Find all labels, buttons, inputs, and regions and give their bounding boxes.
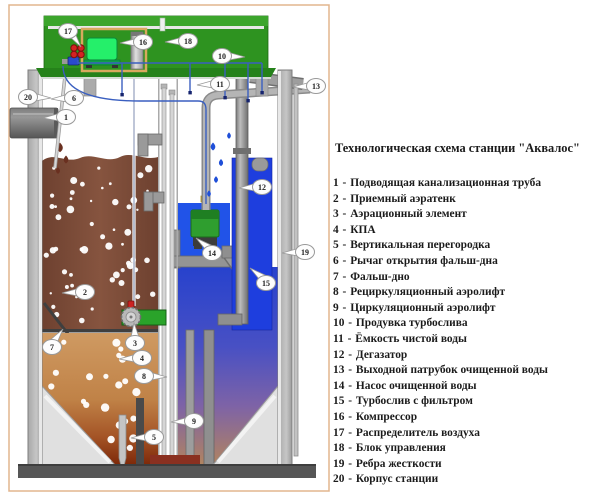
lid-vent bbox=[160, 18, 165, 31]
bubble bbox=[79, 318, 85, 324]
legend-item-5: 5 - Вертикальная перегородка bbox=[333, 238, 609, 254]
legend-text: Ёмкость чистой воды bbox=[355, 333, 467, 345]
legend-text: Турбослив с фильтром bbox=[356, 395, 473, 407]
legend-text: Продувка турбослива bbox=[356, 317, 468, 329]
legend-text: Рычаг открытия фальш-дна bbox=[350, 255, 498, 267]
bubble bbox=[70, 177, 77, 184]
callout-number: 17 bbox=[64, 27, 72, 36]
callout-number: 12 bbox=[258, 183, 266, 192]
legend-text: 11 bbox=[333, 333, 344, 345]
legend-item-19: 19 - Ребра жесткости bbox=[333, 457, 609, 473]
legend-text: - bbox=[344, 427, 356, 439]
legend-item-4: 4 - КПА bbox=[333, 223, 609, 239]
callout-number: 19 bbox=[301, 248, 309, 257]
legend-text: - bbox=[344, 349, 356, 361]
legend-item-3: 3 - Аэрационный элемент bbox=[333, 207, 609, 223]
legend-text: Дегазатор bbox=[356, 349, 407, 361]
legend-text: - bbox=[344, 442, 356, 454]
legend: Технологическая схема станции "Аквалос" … bbox=[333, 141, 609, 488]
bubble bbox=[101, 187, 104, 190]
bubble bbox=[65, 285, 69, 289]
legend-text: 14 bbox=[333, 380, 344, 392]
callout-number: 3 bbox=[133, 339, 137, 348]
legend-text: Блок управления bbox=[356, 442, 446, 454]
bubble bbox=[107, 436, 114, 443]
callout-number: 2 bbox=[83, 288, 87, 297]
bubble bbox=[50, 247, 56, 253]
callout-6: 6 bbox=[51, 91, 84, 106]
legend-text: Ребра жесткости bbox=[356, 458, 442, 470]
stiffening-rib bbox=[294, 84, 298, 456]
legend-text: - bbox=[339, 255, 351, 267]
legend-text: - bbox=[339, 224, 351, 236]
bubble bbox=[115, 381, 122, 388]
bubble bbox=[105, 243, 112, 250]
bubble bbox=[81, 399, 86, 404]
legend-text: - bbox=[344, 380, 356, 392]
legend-title: Технологическая схема станции "Аквалос" bbox=[335, 141, 609, 156]
bubble bbox=[50, 204, 55, 209]
legend-text: 18 bbox=[333, 442, 344, 454]
bubble bbox=[70, 197, 73, 200]
legend-text: 13 bbox=[333, 364, 344, 376]
legend-item-10: 10 - Продувка турбослива bbox=[333, 316, 609, 332]
legend-item-16: 16 - Компрессор bbox=[333, 410, 609, 426]
legend-text: Компрессор bbox=[356, 411, 417, 423]
legend-text: - bbox=[344, 458, 356, 470]
legend-text: 19 bbox=[333, 458, 344, 470]
bubble bbox=[113, 228, 116, 231]
legend-text: 4 bbox=[333, 224, 339, 236]
legend-text: КПА bbox=[350, 224, 375, 236]
legend-text: 6 bbox=[333, 255, 339, 267]
callout-number: 6 bbox=[72, 94, 76, 103]
bubble bbox=[53, 370, 59, 376]
legend-item-18: 18 - Блок управления bbox=[333, 441, 609, 457]
callout-number: 16 bbox=[139, 38, 147, 47]
bubble bbox=[144, 258, 150, 264]
screenshot-root: 1234567891011121314151617181920 Технолог… bbox=[0, 0, 612, 499]
callout-number: 8 bbox=[142, 372, 146, 381]
legend-text: 2 bbox=[333, 193, 339, 205]
legend-text: 3 bbox=[333, 208, 339, 220]
inlet-pipe bbox=[10, 108, 58, 138]
bubble bbox=[127, 445, 133, 451]
legend-text: 1 bbox=[333, 177, 339, 189]
bubble bbox=[69, 273, 73, 277]
legend-text: - bbox=[339, 193, 351, 205]
bubble bbox=[90, 200, 92, 202]
bubble bbox=[132, 388, 140, 396]
bubble bbox=[91, 307, 94, 310]
legend-text: 17 bbox=[333, 427, 344, 439]
bubble bbox=[50, 292, 52, 294]
bubble bbox=[61, 340, 66, 345]
callout-number: 13 bbox=[312, 82, 320, 91]
bubble bbox=[121, 302, 125, 306]
bubble bbox=[137, 172, 143, 178]
lid-rim bbox=[36, 68, 276, 77]
legend-item-2: 2 - Приемный аэратенк bbox=[333, 192, 609, 208]
legend-text: - bbox=[339, 302, 351, 314]
turboslide-column-pipe bbox=[204, 330, 214, 466]
legend-item-7: 7 - Фальш-дно bbox=[333, 270, 609, 286]
bubble bbox=[118, 346, 123, 351]
bubble bbox=[119, 280, 125, 286]
callout-number: 5 bbox=[152, 433, 156, 442]
bubble bbox=[44, 253, 49, 258]
legend-text: Рециркуляционный аэролифт bbox=[350, 286, 505, 298]
legend-text: - bbox=[339, 208, 351, 220]
legend-text: - bbox=[339, 239, 351, 251]
legend-text: Насос очищенной воды bbox=[356, 380, 477, 392]
legend-item-8: 8 - Рециркуляционный аэролифт bbox=[333, 285, 609, 301]
bubble bbox=[127, 204, 132, 209]
callout-number: 20 bbox=[24, 93, 32, 102]
legend-text: - bbox=[344, 333, 356, 345]
station-diagram: 1234567891011121314151617181920 bbox=[0, 0, 335, 499]
legend-item-17: 17 - Распределитель воздуха bbox=[333, 426, 609, 442]
bubble bbox=[80, 247, 84, 251]
bubble bbox=[51, 305, 55, 309]
bubble bbox=[48, 383, 54, 389]
bubble bbox=[121, 268, 125, 272]
legend-text: 5 bbox=[333, 239, 339, 251]
bubble bbox=[50, 194, 54, 198]
bubble bbox=[86, 373, 93, 380]
legend-text: Приемный аэратенк bbox=[350, 193, 456, 205]
legend-text: Выходной патрубок очищенной воды bbox=[356, 364, 548, 376]
legend-text: 10 bbox=[333, 317, 344, 329]
callout-20: 20 bbox=[19, 90, 52, 105]
callout-number: 15 bbox=[262, 279, 270, 288]
legend-text: - bbox=[344, 317, 356, 329]
bubble bbox=[121, 243, 124, 246]
callout-number: 14 bbox=[208, 249, 216, 258]
legend-text: Корпус станции bbox=[356, 473, 438, 485]
legend-text: - bbox=[339, 177, 351, 189]
legend-text: 20 bbox=[333, 473, 344, 485]
legend-list: 1 - Подводящая канализационная труба2 - … bbox=[333, 176, 609, 488]
vertical-partition bbox=[136, 398, 144, 466]
clean-water-drops bbox=[207, 132, 231, 196]
bubble bbox=[145, 165, 152, 172]
legend-text: - bbox=[344, 395, 356, 407]
callout-number: 18 bbox=[184, 37, 192, 46]
legend-item-12: 12 - Дегазатор bbox=[333, 348, 609, 364]
legend-item-11: 11 - Ёмкость чистой воды bbox=[333, 332, 609, 348]
bubble bbox=[56, 214, 62, 220]
legend-text: Подводящая канализационная труба bbox=[350, 177, 541, 189]
circulation-airlift-pipe bbox=[186, 330, 194, 466]
legend-text: - bbox=[344, 364, 356, 376]
bubble bbox=[109, 182, 112, 185]
callout-number: 7 bbox=[50, 343, 54, 352]
bubble bbox=[80, 182, 85, 187]
bubble bbox=[150, 292, 155, 297]
bubble bbox=[130, 416, 136, 422]
bubble bbox=[112, 339, 120, 347]
legend-item-9: 9 - Циркуляционный аэролифт bbox=[333, 301, 609, 317]
legend-text: Вертикальная перегородка bbox=[350, 239, 490, 251]
bubble bbox=[112, 199, 118, 205]
legend-text: - bbox=[339, 286, 351, 298]
legend-text: - bbox=[344, 411, 356, 423]
bubble bbox=[67, 206, 75, 214]
legend-text: Аэрационный элемент bbox=[350, 208, 467, 220]
callout-number: 9 bbox=[192, 417, 196, 426]
callout-number: 4 bbox=[140, 354, 144, 363]
bubble bbox=[97, 167, 100, 170]
legend-item-15: 15 - Турбослив с фильтром bbox=[333, 394, 609, 410]
bubble bbox=[136, 209, 138, 211]
bubble bbox=[113, 272, 120, 279]
bubble bbox=[62, 269, 67, 274]
bubble bbox=[103, 374, 108, 379]
kpa-pipe bbox=[162, 88, 166, 462]
callout-number: 11 bbox=[216, 80, 224, 89]
bubble bbox=[70, 190, 75, 195]
legend-item-1: 1 - Подводящая канализационная труба bbox=[333, 176, 609, 192]
legend-item-6: 6 - Рычаг открытия фальш-дна bbox=[333, 254, 609, 270]
station-base bbox=[18, 464, 316, 478]
legend-text: Циркуляционный аэролифт bbox=[350, 302, 495, 314]
callout-number: 10 bbox=[218, 52, 226, 61]
legend-text: 12 bbox=[333, 349, 344, 361]
bubble bbox=[101, 403, 109, 411]
bubble bbox=[100, 234, 105, 239]
legend-text: 8 bbox=[333, 286, 339, 298]
bubble bbox=[135, 294, 140, 299]
recirculation-airlift-pipe bbox=[170, 94, 174, 462]
bubble bbox=[90, 222, 94, 226]
legend-text: - bbox=[344, 473, 356, 485]
legend-item-14: 14 - Насос очищенной воды bbox=[333, 379, 609, 395]
legend-text: - bbox=[339, 271, 351, 283]
sediment-streak bbox=[150, 455, 200, 464]
bubble bbox=[124, 229, 131, 236]
bubble bbox=[54, 205, 57, 208]
legend-item-13: 13 - Выходной патрубок очищенной воды bbox=[333, 363, 609, 379]
legend-text: 15 bbox=[333, 395, 344, 407]
lever-blade bbox=[119, 415, 126, 472]
bubble bbox=[110, 277, 115, 282]
callout-number: 1 bbox=[64, 113, 68, 122]
legend-item-20: 20 - Корпус станции bbox=[333, 472, 609, 488]
legend-text: 9 bbox=[333, 302, 339, 314]
bubble bbox=[122, 378, 128, 384]
legend-text: 7 bbox=[333, 271, 339, 283]
bubble bbox=[70, 284, 74, 288]
legend-text: Фальш-дно bbox=[350, 271, 409, 283]
callout-9: 9 bbox=[171, 414, 204, 429]
legend-text: Распределитель воздуха bbox=[356, 427, 480, 439]
legend-text: 16 bbox=[333, 411, 344, 423]
degasser-stub-pipe bbox=[252, 158, 268, 171]
